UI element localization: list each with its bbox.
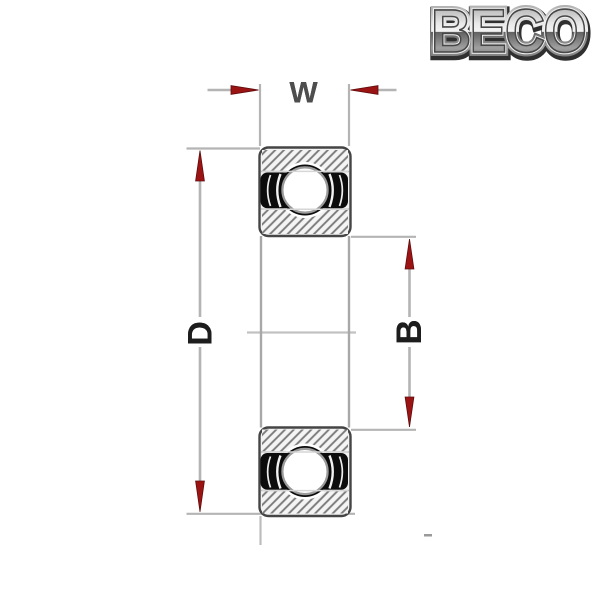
svg-text:W: W	[289, 77, 318, 110]
svg-text:BECO: BECO	[431, 0, 585, 66]
svg-text:B: B	[390, 319, 429, 344]
svg-text:D: D	[182, 321, 220, 346]
